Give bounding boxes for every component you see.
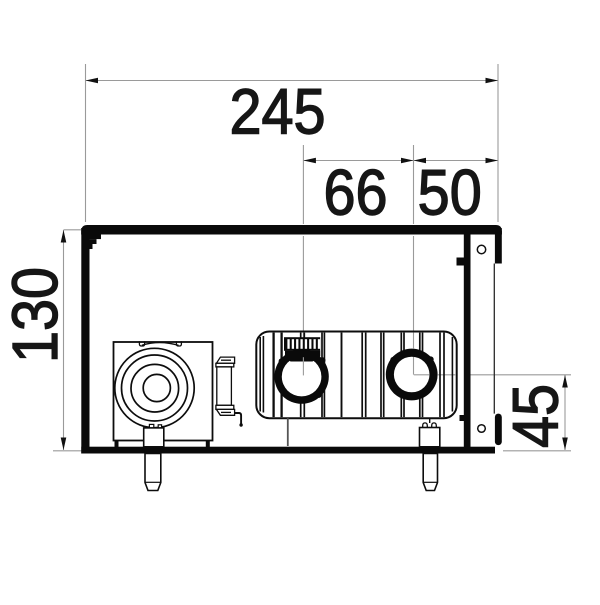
svg-text:245: 245 bbox=[229, 76, 325, 147]
svg-text:130: 130 bbox=[0, 267, 71, 363]
svg-text:66: 66 bbox=[323, 157, 387, 228]
svg-text:50: 50 bbox=[418, 157, 482, 228]
svg-text:45: 45 bbox=[500, 384, 571, 448]
